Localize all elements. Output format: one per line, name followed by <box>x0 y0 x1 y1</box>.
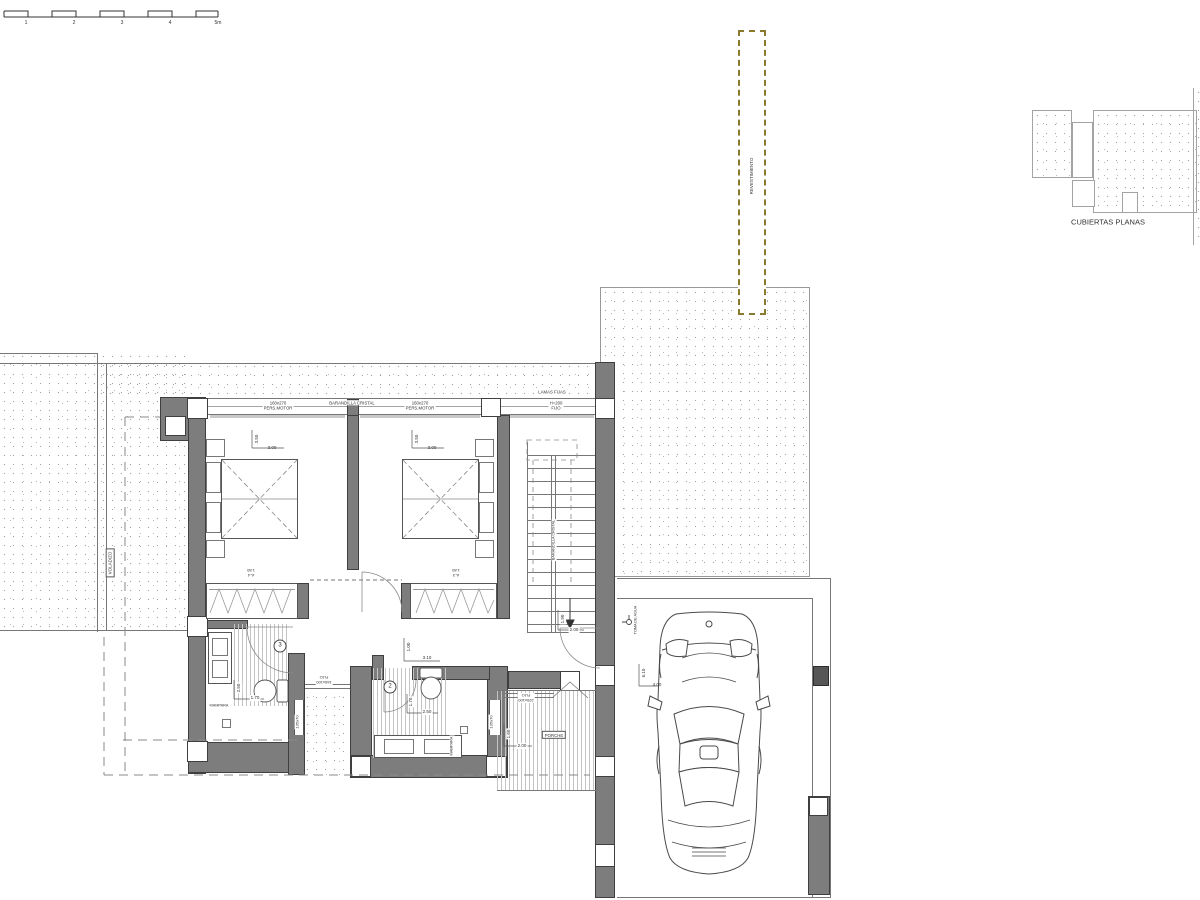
scale-tick-2: 2 <box>73 20 76 26</box>
closet1-label: A-4 1.80 <box>247 568 255 578</box>
dim-bed2-width: 3.00 <box>428 445 437 451</box>
dim-bath3-170: 1.70 <box>250 695 261 701</box>
scale-tick-3: 3 <box>121 20 124 26</box>
voladizo-label: VOLADIZO <box>106 549 115 578</box>
window-label-lamas-fijas: LAMAS FIJAS <box>537 389 566 394</box>
dim-bed1-depth: 3.50 <box>254 435 260 444</box>
floor-plan-canvas: 12345mREVESTIMIENTOCUBIERTAS PLANAS160x2… <box>0 0 1200 900</box>
stair-barandilla-label: BARANDILLA CRISTAL <box>552 519 557 561</box>
dim-garage-length: 6.10 <box>641 669 647 678</box>
mampara-bath2-label: MAMPARA <box>450 736 455 757</box>
patio-window-label: 165x100 FIJO <box>315 675 332 685</box>
window-label-barandilla-cristal: BARANDILLA CRISTAL <box>328 400 376 405</box>
dim-porch-160: 1.60 <box>506 729 512 740</box>
porch-window-label: 220x100 FIJO <box>517 693 534 703</box>
closet2-label: A-3 1.80 <box>452 568 460 578</box>
dim-hall-310: 3.10 <box>423 655 432 661</box>
scale-tick-1: 1 <box>25 20 28 26</box>
revestimiento-label: REVESTIMIENTO <box>749 158 755 195</box>
dim-porch-200: 2.00 <box>517 743 528 749</box>
dim-bath3-250: 2.50 <box>236 683 242 694</box>
scale-tick-5m: 5m <box>215 20 222 26</box>
dim-bath2-250: 2.50 <box>422 709 433 715</box>
dim-stair-200: 2.00 <box>569 627 580 633</box>
cubiertas-planas-label: CUBIERTAS PLANAS <box>1071 217 1145 226</box>
room3-number: 3 <box>274 640 287 653</box>
window-bath3-size: 135x70 <box>295 714 300 729</box>
dim-garage-width: 4.00 <box>653 682 662 688</box>
window-label-pers-motor-1: 160x270 PERS.MOTOR <box>263 401 294 412</box>
window-label-pers-motor-2: 160x270 PERS.MOTOR <box>405 401 436 412</box>
window-bath2-size: 135x70 <box>489 714 494 729</box>
scale-tick-4: 4 <box>169 20 172 26</box>
dim-bath2-170: 1.70 <box>408 697 414 708</box>
dim-bed2-depth: 3.50 <box>414 435 420 444</box>
dim-stair-190: 1.90 <box>560 614 566 625</box>
porche-label: PORCHE <box>542 731 566 739</box>
window-label-fijo-h200: H=200 FIJO <box>549 401 564 412</box>
mampara-bath3-label: MAMPARA <box>209 704 230 709</box>
dim-bed1-width: 3.00 <box>268 445 277 451</box>
room2-number: 2 <box>384 681 397 694</box>
labels-layer: 12345mREVESTIMIENTOCUBIERTAS PLANAS160x2… <box>0 0 1200 900</box>
toma-de-agua-label: TOMA DE AGUA <box>634 606 639 635</box>
dim-hall-100: 1.00 <box>406 643 412 652</box>
